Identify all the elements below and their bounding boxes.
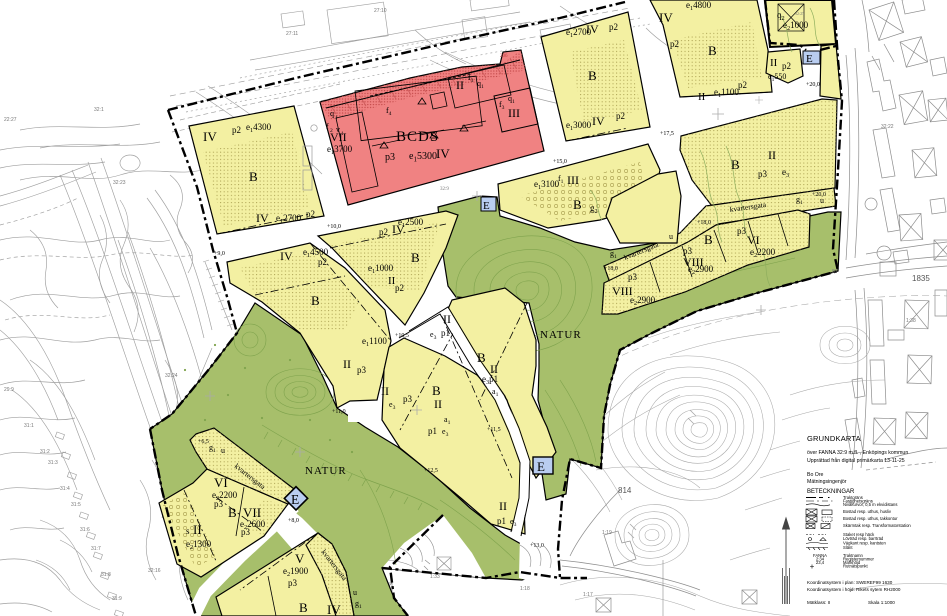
svg-text:32:25: 32:25	[795, 11, 804, 16]
svg-text:E: E	[537, 459, 545, 474]
svg-text:BCDS: BCDS	[396, 129, 439, 145]
svg-text:p2: p2	[670, 39, 679, 49]
svg-text:II: II	[768, 148, 776, 162]
svg-text:Slänt: Slänt	[843, 545, 853, 550]
svg-text:p3: p3	[214, 499, 224, 509]
svg-text:+10,0: +10,0	[327, 224, 341, 230]
svg-text:+6,5: +6,5	[198, 439, 209, 445]
svg-text:32:22: 32:22	[881, 124, 894, 130]
svg-text:II: II	[499, 499, 507, 513]
svg-text:+15,0: +15,0	[553, 159, 567, 165]
svg-text:32:16: 32:16	[148, 568, 161, 574]
svg-text:31:4: 31:4	[60, 486, 70, 492]
svg-text:NATUR: NATUR	[540, 329, 582, 341]
svg-text:VII: VII	[330, 130, 347, 144]
svg-text:32:9: 32:9	[440, 187, 449, 192]
svg-text:p3: p3	[241, 527, 251, 537]
svg-text:32:24: 32:24	[165, 373, 178, 379]
svg-text:27:11: 27:11	[286, 31, 298, 37]
svg-text:31:7: 31:7	[91, 546, 101, 552]
svg-text:IV: IV	[592, 114, 605, 128]
svg-text:IV: IV	[203, 129, 217, 144]
svg-text:e15300: e15300	[409, 151, 437, 164]
svg-text:IV: IV	[256, 211, 269, 225]
svg-text:II: II	[381, 384, 389, 398]
svg-text:p2: p2	[395, 283, 404, 293]
svg-text:p3: p3	[758, 169, 768, 179]
svg-text:22:27: 22:27	[4, 117, 17, 123]
svg-text:31:3: 31:3	[48, 460, 58, 466]
svg-text:p1: p1	[441, 328, 450, 338]
svg-text:32:23: 32:23	[113, 180, 126, 186]
svg-text:1:18: 1:18	[520, 586, 530, 592]
svg-text:B: B	[588, 68, 597, 83]
svg-text:u: u	[221, 446, 225, 455]
svg-text:29:9: 29:9	[4, 387, 14, 393]
svg-text:s: s	[186, 526, 190, 536]
svg-text:III: III	[508, 106, 520, 120]
svg-text:27:10: 27:10	[374, 8, 387, 14]
svg-text:p2: p2	[738, 80, 747, 90]
svg-text:1: 1	[335, 115, 338, 121]
svg-text:u: u	[353, 588, 357, 597]
svg-text:IV: IV	[586, 22, 599, 36]
svg-text:Upprättad från digital primärk: Upprättad från digital primärkarta 13-11…	[807, 457, 905, 464]
svg-text:III: III	[567, 173, 579, 187]
svg-text:Skärmtak resp. Transformatorst: Skärmtak resp. Transformatorstation	[843, 523, 911, 528]
svg-text:1:38: 1:38	[906, 318, 916, 324]
svg-text:87: 87	[832, 269, 838, 275]
svg-text:p2: p2	[318, 257, 327, 267]
svg-text:B: B	[311, 293, 320, 308]
svg-text:B: B	[249, 169, 258, 184]
svg-text:31:6: 31:6	[80, 527, 90, 533]
svg-text:II: II	[443, 312, 451, 326]
svg-text:Bostad resp. uthus, takkontur: Bostad resp. uthus, takkontur	[843, 516, 898, 521]
svg-text:+20,0: +20,0	[806, 82, 820, 88]
svg-text:+18,0: +18,0	[604, 266, 618, 272]
svg-text:+9,0: +9,0	[214, 251, 225, 257]
svg-text:Skala 1:1000: Skala 1:1000	[868, 600, 895, 605]
svg-text:IV: IV	[327, 602, 341, 616]
svg-text:1:17: 1:17	[583, 592, 593, 598]
svg-text:32:1: 32:1	[94, 107, 104, 113]
svg-text:p1: p1	[428, 426, 437, 436]
svg-text:II: II	[434, 397, 442, 411]
svg-text:B: B	[704, 232, 713, 247]
svg-text:VI: VI	[214, 475, 228, 490]
svg-text:+10,5: +10,5	[395, 333, 409, 339]
svg-text:+11,5: +11,5	[487, 427, 501, 433]
svg-text:VII: VII	[243, 505, 261, 520]
svg-text:p3: p3	[357, 365, 367, 375]
svg-text:Nivåkurvor, 0,5 m ekvidistans: Nivåkurvor, 0,5 m ekvidistans	[843, 502, 897, 507]
svg-text:B: B	[411, 250, 420, 265]
svg-text:p2: p2	[616, 111, 625, 121]
svg-text:över FANNA 32:9 m.fl. , Enköp: över FANNA 32:9 m.fl. , Enköpings kommun	[807, 450, 908, 456]
svg-text:II: II	[343, 357, 351, 371]
svg-text:Bostad resp. uthus, husliv: Bostad resp. uthus, husliv	[843, 509, 892, 514]
svg-text:IV: IV	[280, 249, 293, 263]
svg-text:p2: p2	[232, 125, 241, 135]
svg-text:IV: IV	[436, 146, 450, 161]
svg-text:1835: 1835	[912, 274, 930, 283]
svg-text:p2: p2	[379, 227, 388, 237]
svg-text:p3: p3	[628, 272, 638, 282]
svg-text:p3: p3	[403, 394, 413, 404]
svg-text:23,4: 23,4	[816, 560, 825, 565]
svg-text:II: II	[456, 78, 464, 92]
svg-text:Rutnätspunkt: Rutnätspunkt	[843, 564, 869, 569]
svg-text:1:33: 1:33	[430, 574, 440, 580]
svg-text:Koordinatsystem i plan: SWERE: Koordinatsystem i plan: SWEREF99 1630	[807, 580, 893, 585]
svg-text:IV: IV	[659, 10, 673, 25]
svg-text:f: f	[326, 122, 329, 131]
svg-text:31:9: 31:9	[112, 596, 122, 602]
svg-text:Mätningsingenjör: Mätningsingenjör	[807, 479, 847, 485]
svg-text:+18,0: +18,0	[697, 220, 711, 226]
svg-text:V: V	[295, 551, 305, 566]
svg-text:p3: p3	[737, 226, 747, 236]
svg-text:31:8: 31:8	[101, 572, 111, 578]
svg-text:B: B	[731, 157, 740, 172]
svg-text:B: B	[299, 600, 308, 615]
svg-text:VI: VI	[747, 233, 760, 247]
svg-text:1:19: 1:19	[602, 530, 612, 536]
svg-text:II: II	[193, 522, 202, 537]
svg-text:B: B	[708, 43, 717, 58]
svg-text:p1: p1	[497, 516, 506, 526]
svg-text:+17,5: +17,5	[660, 131, 674, 137]
svg-text:p2: p2	[782, 61, 791, 71]
svg-text:+12,5: +12,5	[424, 468, 438, 474]
svg-text:NATUR: NATUR	[305, 465, 347, 477]
svg-text:31:1: 31:1	[24, 423, 34, 429]
svg-text:IV: IV	[392, 222, 405, 236]
svg-text:p2: p2	[306, 209, 315, 219]
svg-text:u: u	[669, 232, 673, 241]
svg-text:814: 814	[618, 486, 632, 495]
svg-text:u: u	[820, 196, 824, 205]
svg-text:II: II	[698, 91, 706, 103]
svg-text:Mätklass: II: Mätklass: II	[807, 600, 830, 605]
svg-text:B: B	[477, 350, 486, 365]
svg-text:GRUNDKARTA: GRUNDKARTA	[807, 434, 861, 443]
svg-text:31:2: 31:2	[40, 449, 50, 455]
svg-text:II: II	[770, 57, 778, 69]
svg-text:+11,0: +11,0	[332, 409, 346, 415]
svg-text:q: q	[330, 109, 334, 118]
svg-text:E: E	[291, 492, 299, 507]
svg-text:Koordinatsystem i höjd: Riket: Koordinatsystem i höjd: Rikets sytem RH2…	[807, 587, 901, 592]
svg-text:+8,0: +8,0	[288, 518, 299, 524]
svg-text:+13,0: +13,0	[530, 543, 544, 549]
svg-text:31:5: 31:5	[71, 502, 81, 508]
svg-text:E: E	[806, 53, 813, 65]
svg-text:206: 206	[500, 54, 508, 59]
svg-text:B: B	[573, 197, 582, 212]
svg-text:E: E	[483, 200, 490, 212]
svg-text:B: B	[228, 505, 237, 520]
svg-text:B: B	[432, 383, 441, 398]
svg-text:p2: p2	[609, 22, 618, 32]
svg-text:p3: p3	[288, 578, 298, 588]
svg-text:Bo Ore: Bo Ore	[807, 472, 824, 478]
svg-text:p3: p3	[385, 152, 395, 163]
